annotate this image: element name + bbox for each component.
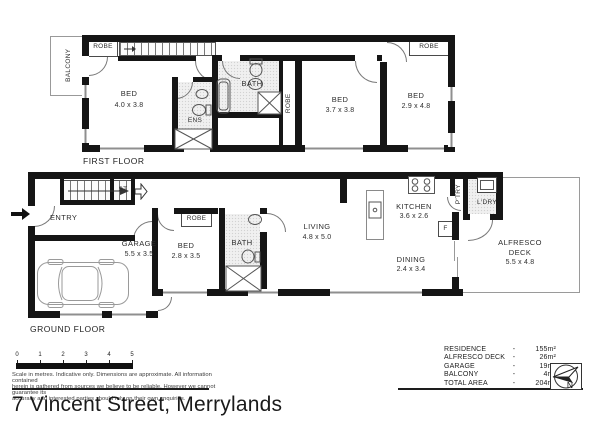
door-arc: [158, 297, 172, 311]
legend-row: GARAGE - 19m²: [444, 363, 556, 371]
room-label: DECK: [485, 249, 555, 257]
window: [60, 311, 102, 318]
legend-label: BALCONY: [444, 371, 510, 379]
door-arc: [355, 61, 377, 83]
deck-edge: [462, 292, 580, 293]
basin-icon: [249, 215, 262, 225]
floor-title: FIRST FLOOR: [83, 156, 145, 166]
room-label: P'TRY: [456, 174, 463, 214]
room-label: ST: [113, 187, 133, 194]
robe-label: ROBE: [88, 44, 118, 51]
room-label: ALFRESCO: [485, 239, 555, 247]
scale-bar-rule: [16, 363, 133, 369]
room-label: DINING: [381, 256, 441, 264]
sliding-door: [457, 257, 458, 277]
deck-edge: [503, 177, 580, 178]
disclaimer-line: Scale in metres. Indicative only. Dimens…: [12, 372, 227, 384]
page-title: 7 Vincent Street, Merrylands: [12, 393, 282, 417]
door-arc: [267, 213, 286, 232]
wall-segment: [463, 214, 470, 220]
room-dims: 2.8 x 3.5: [161, 253, 211, 260]
legend-label: ALFRESCO DECK: [444, 354, 510, 362]
window: [82, 85, 89, 98]
window: [163, 289, 207, 296]
toilet-icon: [206, 105, 211, 115]
wall-segment: [490, 214, 503, 220]
room-label: BATH: [232, 80, 272, 88]
wall-segment: [377, 55, 382, 61]
legend-label: RESIDENCE: [444, 346, 510, 354]
legend-sep: -: [510, 346, 518, 354]
window: [448, 87, 455, 101]
door-arc: [387, 42, 407, 62]
scale-bar: 0 1 2 3 4 5: [12, 352, 144, 372]
area-legend: RESIDENCE - 155m² ALFRESCO DECK - 26m² G…: [444, 346, 556, 388]
legend-row: TOTAL AREA - 204m²: [444, 380, 556, 388]
window: [100, 145, 144, 152]
window: [448, 133, 455, 147]
legend-row: ALFRESCO DECK - 26m²: [444, 354, 556, 362]
room-label: ENS: [180, 118, 210, 125]
room-label: LIVING: [287, 223, 347, 231]
legend-sep: -: [510, 380, 518, 388]
room-label: BED: [161, 242, 211, 250]
room-dims: 4.8 x 5.0: [287, 234, 347, 241]
room-label: L'DRY: [470, 200, 504, 207]
room-dims: 2.9 x 4.8: [386, 103, 446, 110]
room-label: BED: [386, 92, 446, 100]
wall-segment: [452, 212, 459, 240]
room-label: ENTRY: [50, 214, 90, 222]
wall-segment: [118, 56, 196, 61]
legend-row: RESIDENCE - 155m²: [444, 346, 556, 354]
divider: [12, 388, 209, 390]
wall-segment: [452, 277, 459, 296]
robe-label: ROBE: [181, 216, 212, 223]
balcony-label: BALCONY: [66, 35, 73, 95]
north-label: N: [567, 380, 573, 390]
door-arc: [89, 57, 108, 76]
wall-segment: [60, 200, 135, 205]
wall-segment: [380, 35, 387, 42]
wall-segment: [28, 172, 35, 206]
laundry-tub-icon: [477, 177, 497, 193]
scale-tick: 0: [12, 352, 22, 358]
room-dims: 2.4 x 3.4: [381, 266, 441, 273]
room-label: BATH: [222, 239, 262, 247]
legend-value: 155m²: [518, 346, 556, 354]
door-arc: [157, 214, 174, 231]
kitchen-bench-sink: [366, 190, 384, 240]
wall-segment: [295, 61, 302, 152]
scale-tick: 3: [81, 352, 91, 358]
bathroom-fixtures: [219, 208, 267, 293]
door-arc: [468, 220, 493, 241]
floor-plan-page: BALCONY ROBE: [0, 0, 600, 424]
window: [112, 311, 146, 318]
legend-row: BALCONY - 4m²: [444, 371, 556, 379]
window: [305, 145, 363, 152]
room-label: KITCHEN: [384, 203, 444, 211]
window: [330, 289, 422, 296]
deck-edge: [579, 177, 580, 293]
room-dims: 5.5 x 3.5: [109, 251, 169, 258]
room-label: GARAGE: [109, 240, 169, 248]
robe-label: ROBE: [414, 44, 444, 51]
north-arrow-icon: N: [550, 363, 583, 391]
room-dims: 5.5 x 4.8: [485, 259, 555, 266]
scale-tick: 4: [104, 352, 114, 358]
room-dims: 3.6 x 2.6: [384, 213, 444, 220]
robe-label: ROBE: [286, 83, 293, 123]
room-label: BED: [99, 90, 159, 98]
legend-sep: -: [510, 371, 518, 379]
scale-tick: 5: [127, 352, 137, 358]
car-icon: [36, 258, 130, 309]
wall-segment: [82, 35, 455, 42]
window: [408, 145, 444, 152]
basin-icon: [196, 90, 208, 99]
balcony-door-opening: [82, 56, 89, 77]
wall-segment: [174, 208, 218, 214]
storage-arrow-icon: [135, 183, 148, 200]
legend-label: TOTAL AREA: [444, 380, 510, 388]
wall-segment: [340, 179, 347, 203]
scale-tick: 2: [58, 352, 68, 358]
scale-tick: 1: [35, 352, 45, 358]
toilet-icon: [255, 252, 260, 262]
floor-title: GROUND FLOOR: [30, 324, 105, 334]
window: [82, 129, 89, 143]
ensuite-fixtures: [172, 77, 216, 152]
room-label: BED: [310, 96, 370, 104]
room-dims: 3.7 x 3.8: [310, 107, 370, 114]
stove-icon: [408, 176, 435, 194]
room-dims: 4.0 x 3.8: [99, 102, 159, 109]
stair-direction-arrow-icon: [123, 45, 137, 53]
door-arc: [133, 221, 152, 240]
legend-sep: -: [510, 354, 518, 362]
fridge-label: F: [438, 226, 453, 233]
legend-value: 26m²: [518, 354, 556, 362]
legend-label: GARAGE: [444, 363, 510, 371]
entry-arrow-icon: [11, 208, 30, 220]
legend-sep: -: [510, 363, 518, 371]
sliding-door: [454, 241, 455, 261]
